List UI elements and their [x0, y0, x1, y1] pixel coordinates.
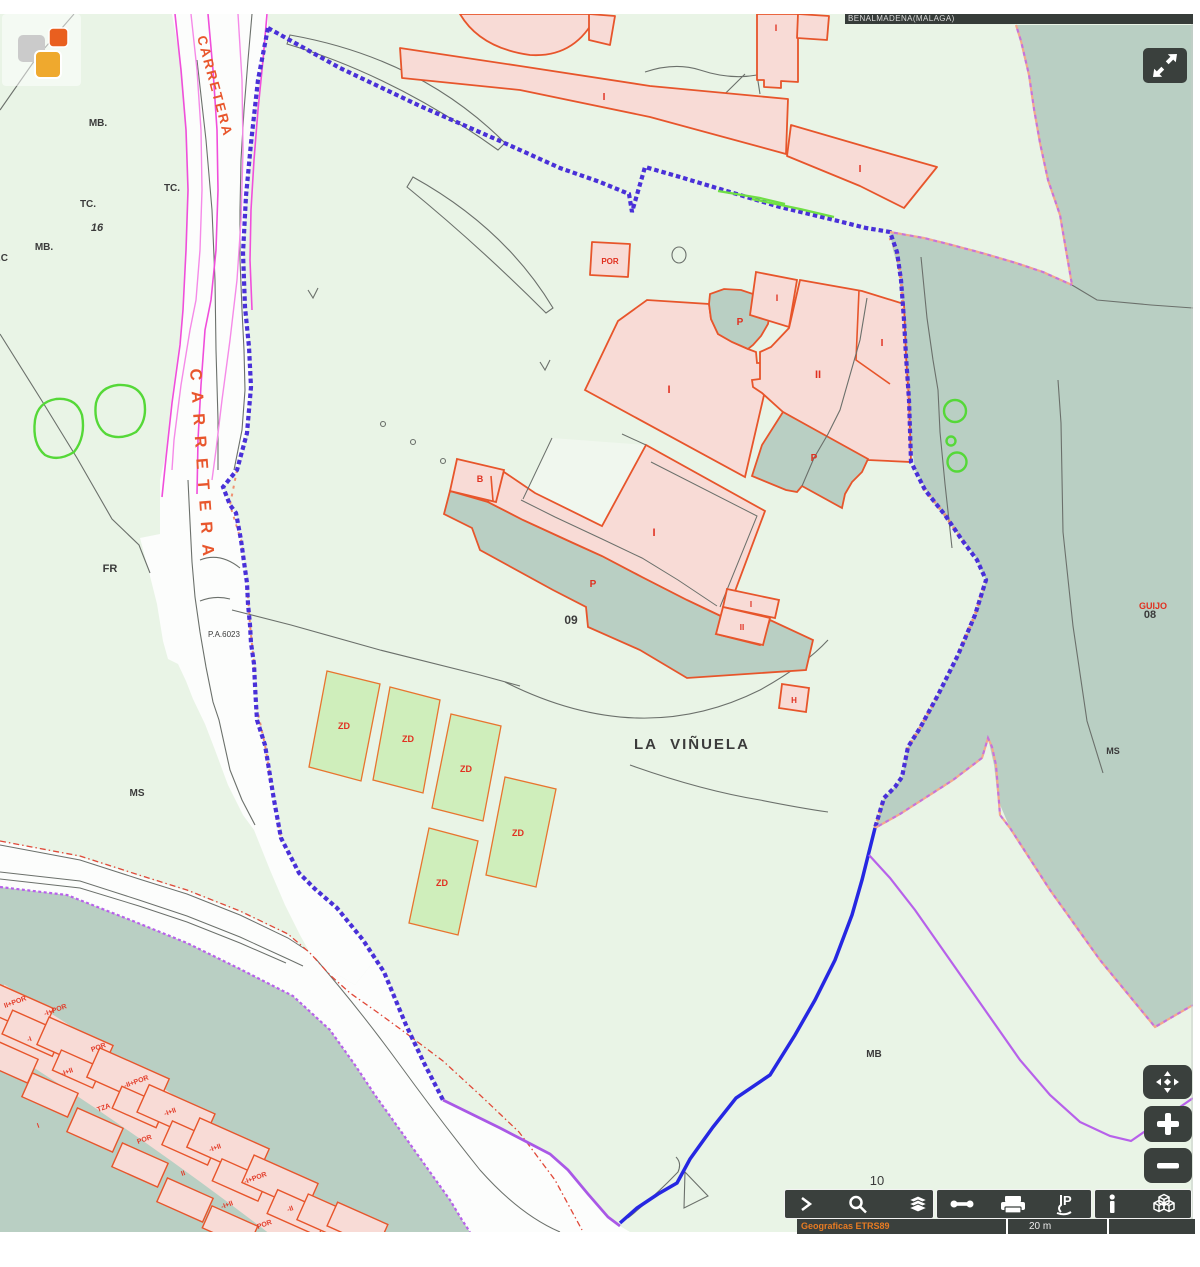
svg-text:MS: MS: [1106, 746, 1120, 756]
svg-text:09: 09: [564, 613, 578, 627]
svg-text:POR: POR: [601, 257, 619, 266]
svg-text:LA: LA: [634, 736, 658, 753]
svg-text:P.A.6023: P.A.6023: [208, 630, 240, 639]
svg-text:I: I: [667, 384, 670, 396]
svg-text:II: II: [815, 369, 821, 381]
svg-text:ZD: ZD: [402, 734, 414, 744]
svg-text:I: I: [652, 527, 655, 539]
svg-text:P: P: [811, 453, 818, 464]
svg-text:.C: .C: [0, 253, 8, 264]
svg-text:16: 16: [91, 222, 104, 234]
svg-text:I: I: [776, 293, 779, 303]
svg-text:I: I: [750, 600, 752, 609]
svg-text:ZD: ZD: [512, 828, 524, 838]
svg-text:MB.: MB.: [35, 242, 54, 253]
svg-text:VIÑUELA: VIÑUELA: [670, 735, 750, 753]
svg-text:ZD: ZD: [338, 721, 350, 731]
svg-text:I: I: [775, 23, 778, 33]
svg-text:H: H: [791, 696, 797, 705]
svg-text:TC.: TC.: [164, 183, 180, 194]
svg-text:MS: MS: [130, 788, 145, 799]
svg-text:P: P: [737, 317, 744, 328]
svg-text:GUIJO: GUIJO: [1139, 601, 1167, 611]
svg-text:I: I: [603, 92, 606, 103]
svg-text:MB.: MB.: [89, 118, 108, 129]
svg-text:P: P: [590, 579, 597, 590]
svg-text:MB: MB: [866, 1049, 882, 1060]
svg-text:I: I: [881, 338, 884, 349]
svg-text:P: P: [1063, 1193, 1072, 1208]
svg-text:ZD: ZD: [460, 764, 472, 774]
svg-text:ZD: ZD: [436, 878, 448, 888]
svg-text:B: B: [477, 474, 484, 484]
svg-text:II: II: [740, 623, 744, 632]
svg-text:I: I: [859, 164, 862, 175]
svg-text:FR: FR: [103, 563, 118, 575]
svg-text:10: 10: [870, 1173, 884, 1188]
svg-text:TC.: TC.: [80, 199, 96, 210]
